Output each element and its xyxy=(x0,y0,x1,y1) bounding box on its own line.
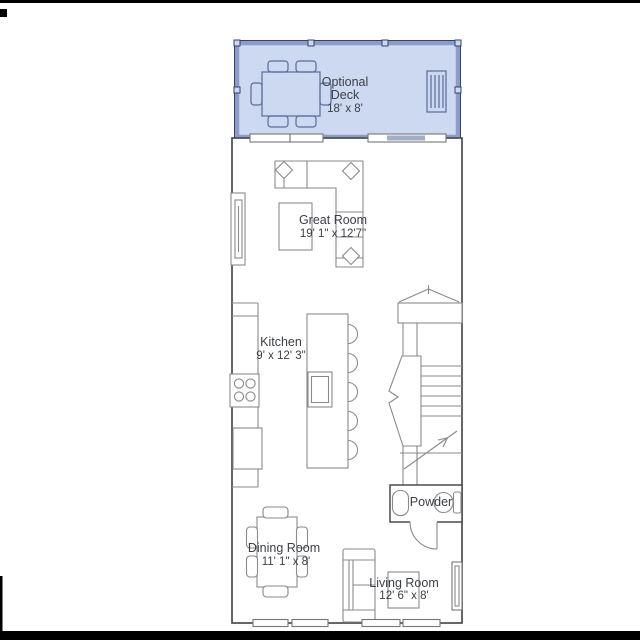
kitchen-dims: 9' x 12' 3" xyxy=(256,350,305,362)
fireplace-window xyxy=(231,193,245,265)
stair-landing xyxy=(398,303,462,323)
powder-sink xyxy=(393,491,409,516)
deck-label-line2: Deck xyxy=(331,88,360,102)
right-wall-window xyxy=(452,562,462,610)
living-room-dims: 12' 6" x 8' xyxy=(379,590,428,602)
rear-window xyxy=(290,134,323,142)
floor-plan-drawing: Optional Deck 18' x 8' Great Room 19' 1"… xyxy=(0,0,640,640)
powder-label: Powder xyxy=(410,495,452,509)
deck-label-line1: Optional xyxy=(322,75,369,89)
floor-plan-canvas: Optional Deck 18' x 8' Great Room 19' 1"… xyxy=(0,0,640,640)
cooktop xyxy=(230,374,259,407)
deck-dims: 18' x 8' xyxy=(327,103,363,115)
bottom-edge-bar xyxy=(0,631,640,640)
left-edge-strip xyxy=(0,576,3,631)
top-left-mark xyxy=(0,9,7,17)
kitchen-island xyxy=(307,314,348,468)
sliding-door-panel xyxy=(387,136,425,141)
kitchen-label: Kitchen xyxy=(260,335,302,349)
refrigerator xyxy=(233,428,262,469)
living-room-label: Living Room xyxy=(369,576,438,590)
great-room-label: Great Room xyxy=(299,213,367,227)
great-room-dims: 19' 1" x 12'7" xyxy=(300,228,366,240)
top-edge-bar xyxy=(0,0,640,3)
dining-chair xyxy=(247,556,258,577)
dining-room-dims: 11' 1" x 8' xyxy=(262,556,311,568)
dining-chair xyxy=(263,586,288,597)
dining-room-label: Dining Room xyxy=(248,541,320,555)
rear-window xyxy=(250,134,290,142)
dining-chair xyxy=(263,507,288,518)
